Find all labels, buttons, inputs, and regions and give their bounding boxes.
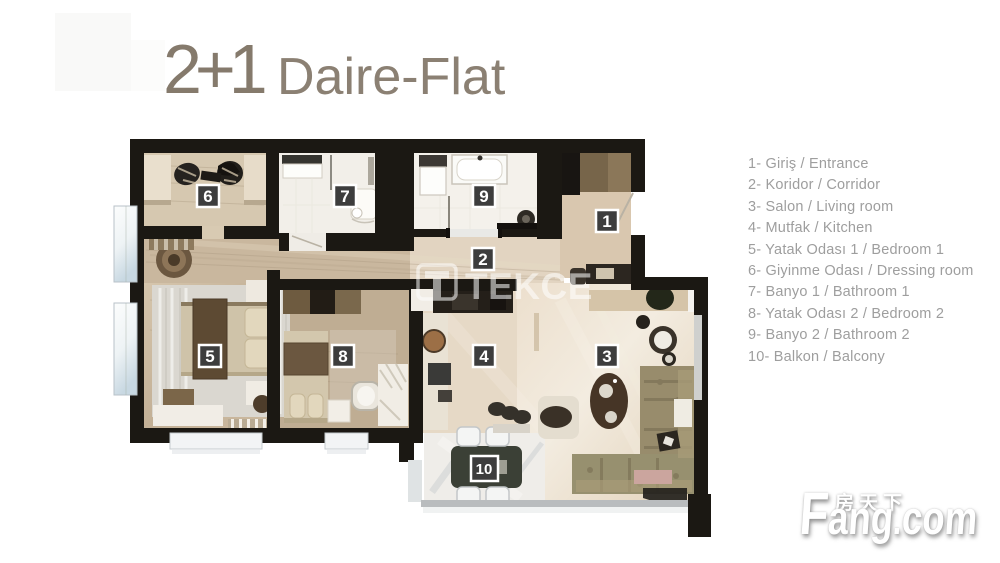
svg-text:5: 5 bbox=[205, 347, 214, 366]
svg-text:4: 4 bbox=[479, 347, 489, 366]
svg-text:6: 6 bbox=[203, 187, 212, 206]
svg-text:3: 3 bbox=[602, 347, 611, 366]
svg-text:1: 1 bbox=[602, 212, 611, 231]
svg-text:8: 8 bbox=[338, 347, 347, 366]
svg-text:10: 10 bbox=[476, 461, 493, 478]
svg-text:7: 7 bbox=[340, 187, 349, 206]
svg-text:9: 9 bbox=[479, 187, 488, 206]
svg-text:2: 2 bbox=[478, 250, 487, 269]
svg-text:TEKCE: TEKCE bbox=[465, 266, 593, 307]
